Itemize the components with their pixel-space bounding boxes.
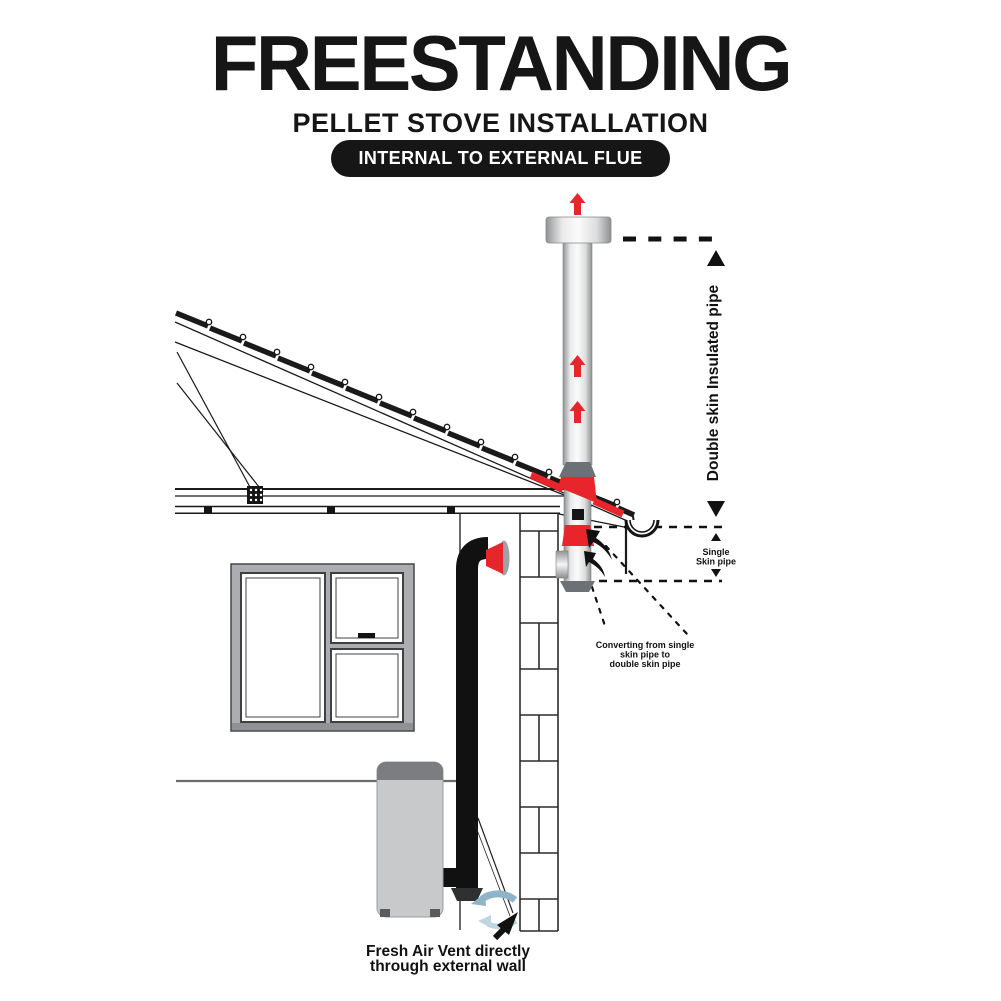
stove-foot-right bbox=[430, 909, 440, 917]
window-pane-bottom-right bbox=[331, 649, 403, 722]
stove-foot-left bbox=[380, 909, 390, 917]
brick-wall bbox=[520, 514, 558, 931]
converter-leader-1 bbox=[606, 546, 687, 634]
gutter bbox=[626, 520, 658, 536]
stove-connector bbox=[441, 868, 467, 887]
chimney-cap bbox=[546, 217, 611, 243]
double-skin-pipe bbox=[563, 241, 592, 465]
tee-cap bbox=[560, 581, 595, 592]
window-pane-top-right bbox=[331, 573, 403, 643]
label-single-skin-2: Skin pipe bbox=[696, 557, 736, 567]
stove-flue-pipe bbox=[441, 541, 510, 902]
window bbox=[231, 564, 414, 731]
tile-hooks bbox=[206, 319, 619, 504]
label-double-skin: Double skin Insulated pipe bbox=[705, 284, 722, 481]
label-converting-2: skin pipe to bbox=[620, 650, 671, 660]
label-single-skin-1: Single bbox=[702, 547, 729, 557]
pellet-stove bbox=[377, 762, 443, 917]
installation-diagram: Double skin Insulated pipe Single Skin p… bbox=[0, 0, 1001, 1001]
truss-plate bbox=[247, 486, 263, 504]
wall-tee-stub bbox=[556, 551, 568, 578]
poster: FREESTANDING PELLET STOVE INSTALLATION I… bbox=[0, 0, 1001, 1001]
wall-collar bbox=[486, 542, 503, 574]
window-pane-left bbox=[241, 573, 325, 722]
converter-leader-2 bbox=[592, 587, 606, 629]
fresh-air-vent bbox=[471, 818, 518, 938]
label-fresh-air-2: through external wall bbox=[370, 958, 526, 975]
window-handle bbox=[358, 633, 375, 638]
label-converting-3: double skin pipe bbox=[609, 659, 680, 669]
eave-bracket bbox=[572, 509, 584, 520]
label-converting-1: Converting from single bbox=[596, 640, 695, 650]
